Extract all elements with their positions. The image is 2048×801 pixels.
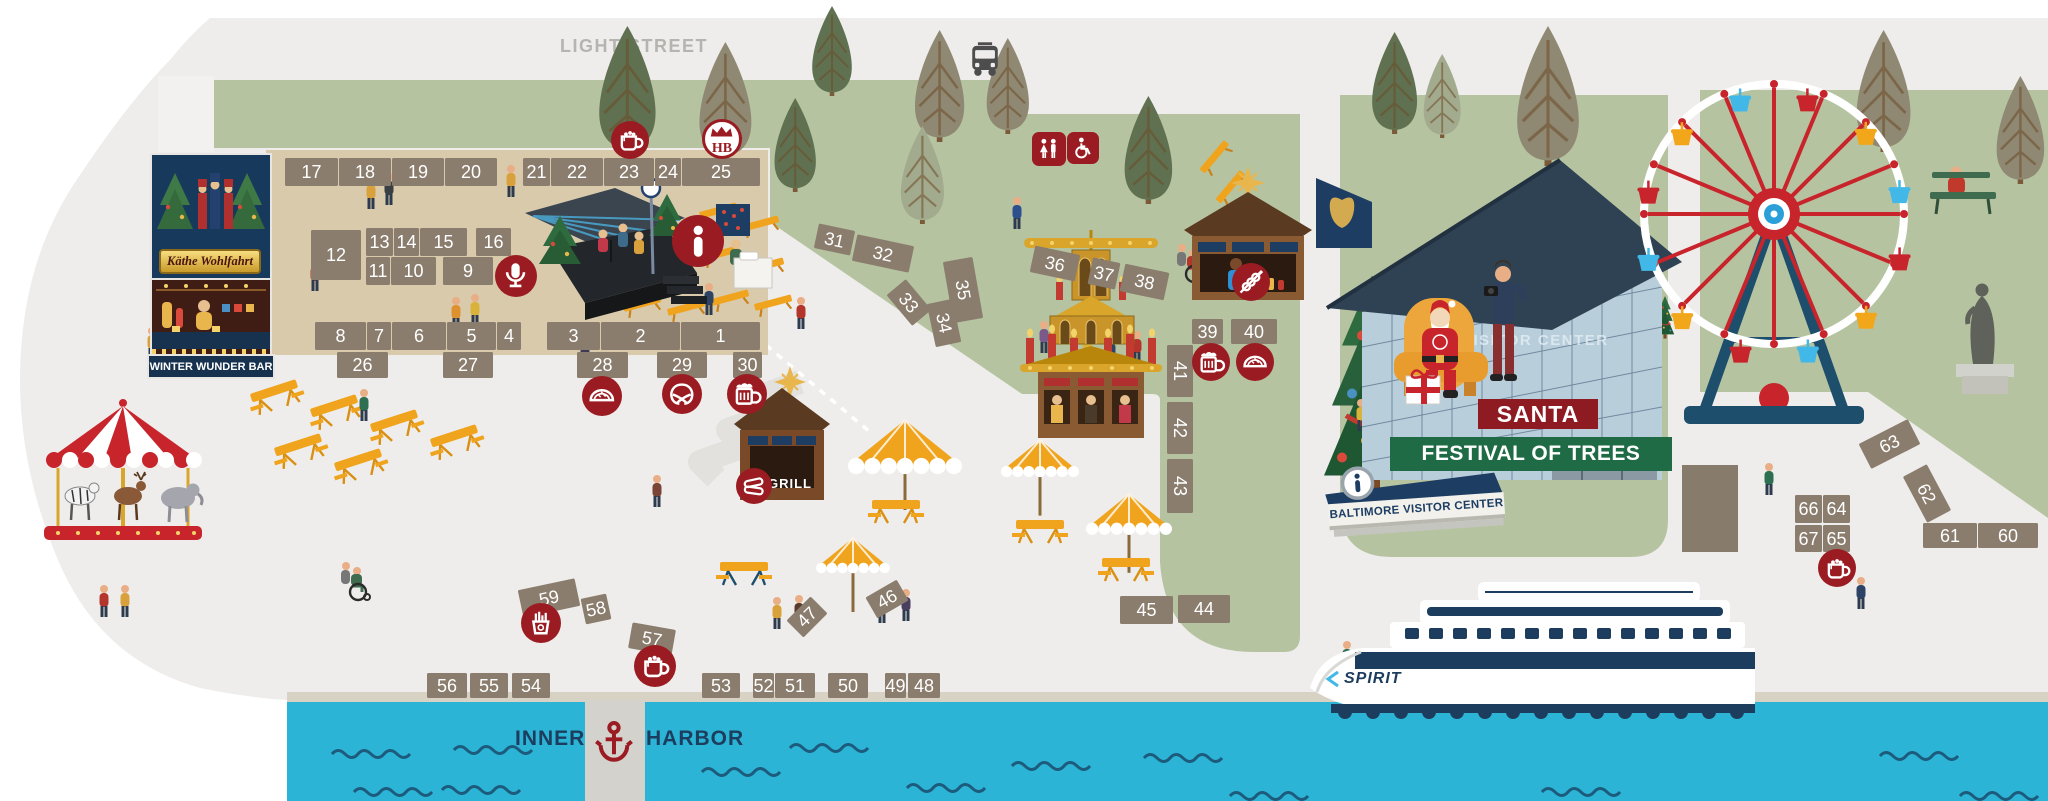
microphone-icon [495,255,537,297]
wheelchair-accessible-icon [1067,132,1099,164]
crown-icon [709,122,734,142]
bus-stop-icon [962,37,1008,83]
beer-icon [1192,343,1230,381]
hot-chocolate-icon [1818,549,1856,587]
hofbrau-badge-icon: HB [702,119,742,159]
inner-label: INNER [515,727,577,751]
icons-layer: HB [0,0,2048,801]
empanada-icon [582,376,622,416]
fries-icon [521,603,561,643]
spirit-swoosh-icon [1324,670,1342,688]
pretzel-icon [662,374,702,414]
restroom-icon [1032,132,1066,166]
info-icon [672,215,724,267]
hot-chocolate-icon [634,645,676,687]
hot-chocolate-icon [611,121,649,159]
sausage-grill-icon [736,468,772,504]
empanada-icon [1236,343,1274,381]
kebab-skewer-icon [1232,263,1270,301]
anchor-icon [587,714,641,768]
boat-name: SPIRIT [1324,670,1402,688]
hofbrau-text: HB [712,142,732,156]
harbor-label: HARBOR [646,727,744,751]
christmas-village-map: LIGHT STREET Käthe Wohlfahrt [0,0,2048,801]
beer-icon [727,374,767,414]
